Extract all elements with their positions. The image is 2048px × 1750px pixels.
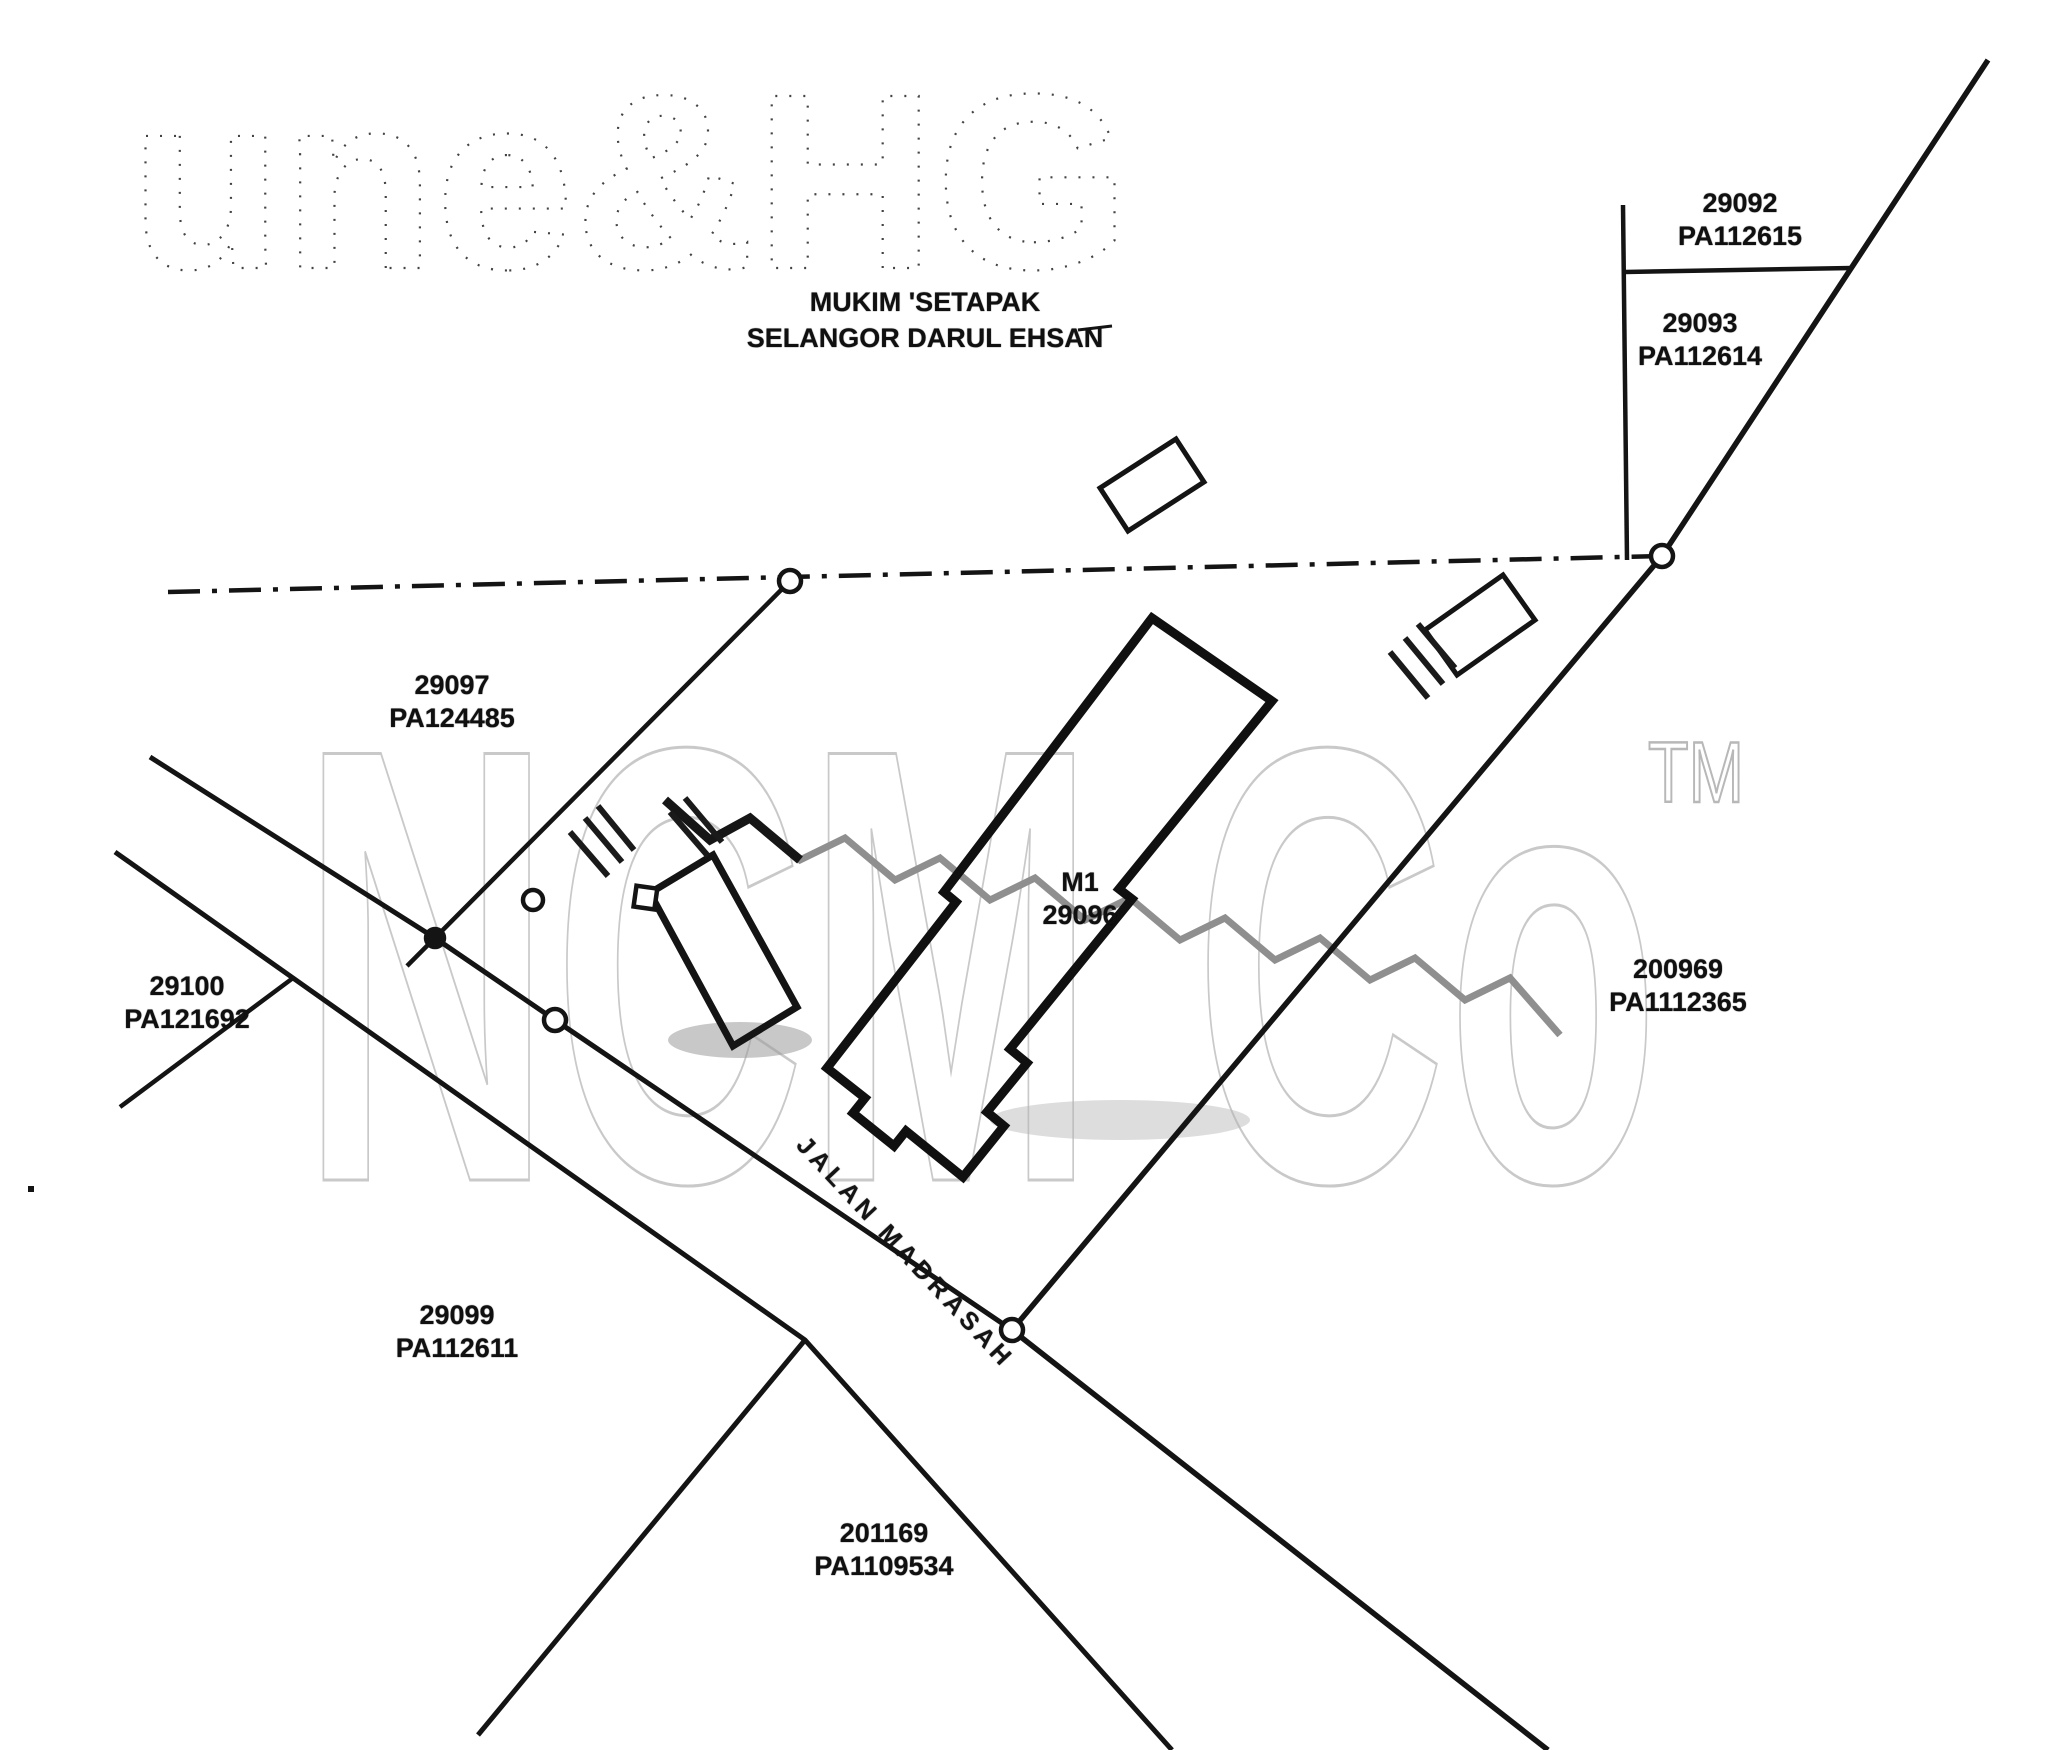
- lot-number: 201169: [840, 1518, 929, 1548]
- parcel-label-201169: 201169 PA1109534: [814, 1517, 953, 1583]
- trademark-symbol: TM: [1648, 725, 1744, 821]
- lot-number: 29099: [419, 1300, 494, 1330]
- survey-circle-marker: [779, 570, 801, 592]
- parcel-label-29099: 29099 PA112611: [396, 1299, 519, 1365]
- lot-29092-29093-division-line: [1625, 268, 1852, 272]
- pa-number: PA112611: [396, 1332, 519, 1365]
- parcel-label-29093: 29093 PA112614: [1638, 307, 1762, 373]
- brand-watermark: NCM Co TM: [300, 620, 1744, 1312]
- scan-artifact-dot: [28, 1186, 34, 1192]
- survey-circle-marker: [1651, 545, 1673, 567]
- cadastral-map-page: une&HG NCM Co TM: [0, 0, 2048, 1750]
- mukim-name: MUKIM 'SETAPAK: [810, 287, 1040, 317]
- building-unit: M1: [1061, 867, 1099, 897]
- mukim-boundary-dashdot-line: [168, 556, 1662, 592]
- building-label: M1 29096: [1042, 866, 1117, 932]
- state-name: SELANGOR DARUL EHSAN: [747, 320, 1104, 356]
- lot-number: 29097: [414, 670, 489, 700]
- pa-number: PA1112365: [1609, 986, 1747, 1019]
- utility-box-structure: [1100, 439, 1204, 531]
- survey-junction-dot: [426, 929, 444, 947]
- lot-number: 29092: [1702, 188, 1777, 218]
- pa-number: PA1109534: [814, 1550, 953, 1583]
- parcel-label-29100: 29100 PA121692: [124, 970, 250, 1036]
- lot-number: 200969: [1633, 954, 1723, 984]
- ghost-text: une&HG: [130, 42, 1130, 321]
- pa-number: PA112615: [1678, 220, 1802, 253]
- map-linework: une&HG NCM Co TM: [0, 0, 2048, 1750]
- pa-number: PA121692: [124, 1003, 250, 1036]
- survey-square-marker: [634, 886, 658, 910]
- pa-number: PA124485: [389, 702, 515, 735]
- parcel-label-29097: 29097 PA124485: [389, 669, 515, 735]
- lot-29099-201169-boundary-line: [478, 1340, 805, 1735]
- lot-29092-west-boundary-line: [1623, 205, 1627, 560]
- lot-number: 29100: [149, 971, 224, 1001]
- pa-number: PA112614: [1638, 340, 1762, 373]
- scan-smudge: [990, 1100, 1250, 1140]
- parcel-label-200969: 200969 PA1112365: [1609, 953, 1747, 1019]
- ghost-header-watermark: une&HG: [130, 42, 1130, 321]
- lot-number: 29093: [1662, 308, 1737, 338]
- building-lot-number: 29096: [1042, 899, 1117, 932]
- survey-circle-marker: [523, 890, 543, 910]
- parcel-label-29092: 29092 PA112615: [1678, 187, 1802, 253]
- district-label: MUKIM 'SETAPAK SELANGOR DARUL EHSAN: [747, 284, 1104, 356]
- survey-circle-marker: [544, 1009, 566, 1031]
